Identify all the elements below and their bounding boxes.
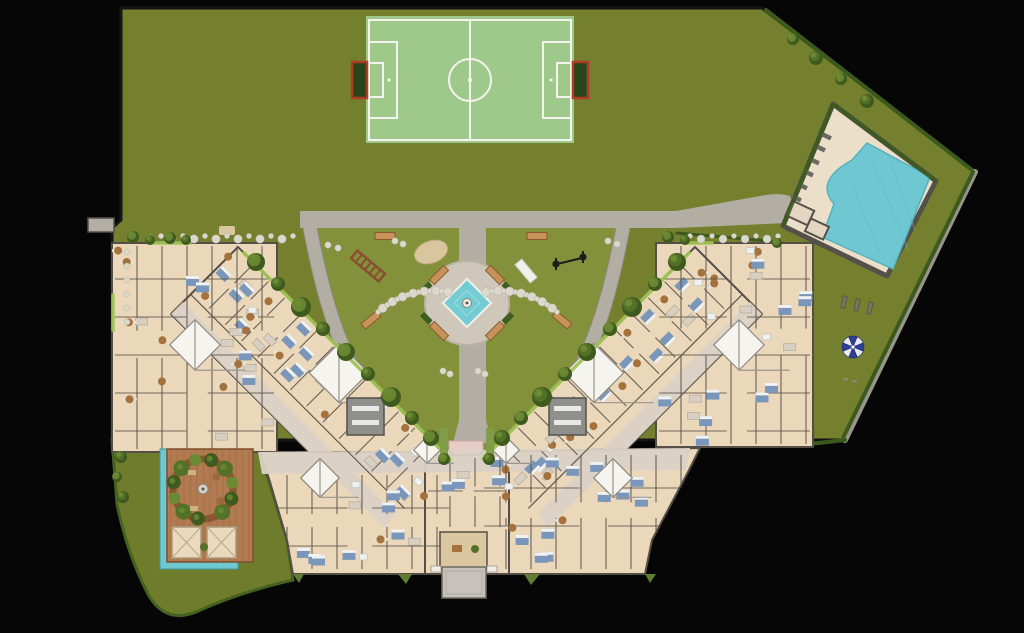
- gate-path-stub: [88, 218, 114, 232]
- goal-right: [573, 62, 588, 98]
- doorstep: [487, 566, 497, 572]
- lobby-plant: [471, 545, 479, 553]
- penalty-spot-left: [387, 78, 390, 81]
- stair-roof-right: [549, 398, 586, 435]
- skylight: [352, 406, 379, 411]
- fountain-jet: [466, 302, 469, 305]
- plaza-walkway-south: [459, 333, 486, 425]
- penalty-spot-right: [549, 78, 552, 81]
- doorstep: [431, 566, 441, 572]
- soccer-field: [352, 16, 588, 143]
- lobby-desk: [452, 545, 462, 552]
- site-plan: [0, 0, 1024, 633]
- skylight: [554, 420, 581, 425]
- stair-roof-left: [347, 398, 384, 435]
- terrace-bush: [200, 543, 208, 551]
- site-plan-stage: [0, 0, 1024, 633]
- skylight: [554, 406, 581, 411]
- terrace-center-dot: [202, 488, 205, 491]
- center-spot: [468, 78, 472, 82]
- entrance-canopy: [442, 567, 486, 598]
- parasol: [842, 336, 864, 358]
- lobby: [440, 532, 487, 568]
- skylight: [352, 420, 379, 425]
- goal-left: [352, 62, 367, 98]
- deck-terrace: [160, 449, 253, 569]
